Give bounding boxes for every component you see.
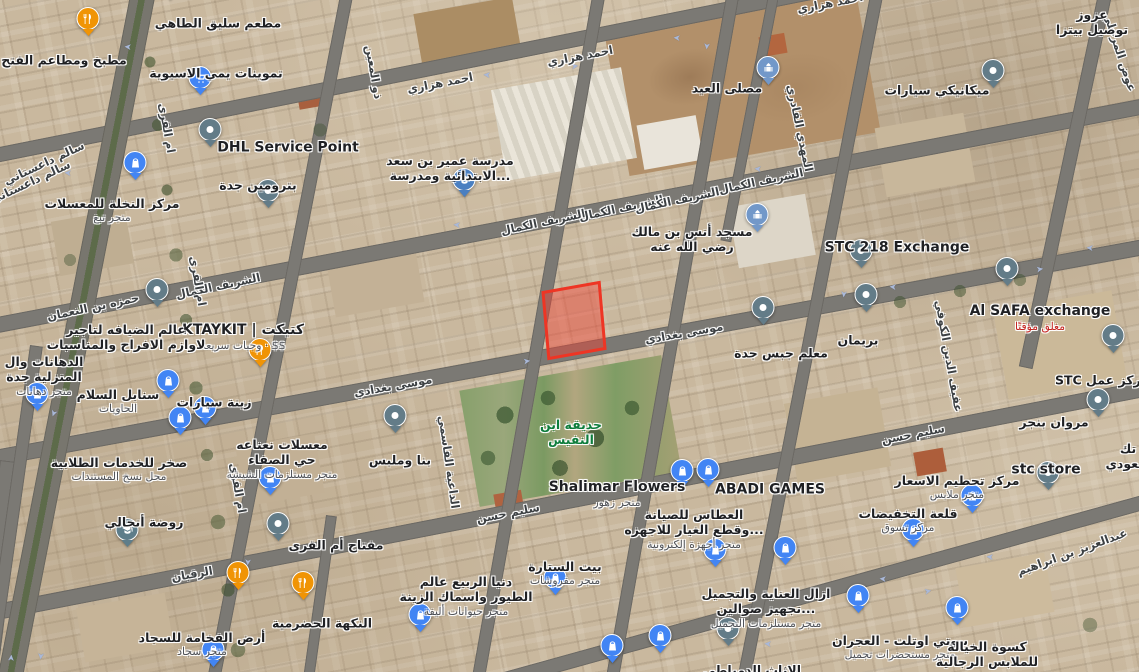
poi-label-hadiqat-ibn-alnafis[interactable]: حديقة ابنالنفيس bbox=[540, 417, 602, 448]
street-name-label: احمد هزاري bbox=[796, 0, 864, 16]
poi-label-matbakh-wa-mataem-alfath[interactable]: مطبخ ومطاعم الفتح bbox=[1, 52, 127, 67]
pin-tail bbox=[129, 173, 141, 180]
dot-icon bbox=[207, 126, 214, 133]
poi-label-markaz-tahtim-alasaar[interactable]: مركز تحطيم الاسعارمتجر ملابس bbox=[895, 473, 1020, 501]
poi-label-line: DHL Service Point bbox=[217, 139, 359, 156]
street-name-label: المهدي القادري bbox=[784, 83, 816, 173]
poi-label-matam-saliq-altahi[interactable]: مطعم سليق الطاهي bbox=[155, 15, 281, 30]
pin-tail bbox=[1107, 346, 1119, 353]
poi-label-line: روضة أنجالي bbox=[105, 514, 184, 529]
dot-pin-icon bbox=[384, 404, 407, 427]
pin-tail bbox=[762, 78, 774, 85]
pin-tail bbox=[966, 506, 978, 513]
poi-pin-bag-pin-a[interactable] bbox=[649, 624, 672, 653]
poi-label-ard-alfakhama-lilsajjad[interactable]: أرض الفخامة للسجادمتجر سجاد bbox=[139, 630, 266, 658]
mosque-pin-icon bbox=[746, 203, 769, 226]
poi-label-line: مطعم سليق الطاهي bbox=[155, 15, 281, 30]
pin-tail bbox=[702, 480, 714, 487]
poi-pin-bag-pin-e[interactable] bbox=[774, 536, 797, 565]
poi-pin-restaurant-pin-west[interactable] bbox=[227, 561, 250, 590]
poi-label-line: تك bbox=[1105, 441, 1139, 456]
poi-label-line: الطيور واسماك الزينة bbox=[399, 589, 532, 604]
poi-label-petromin-jeddah[interactable]: بترومين جدة bbox=[219, 177, 296, 192]
labels-layer: سالم داعستانيسالم داعستانياحمد هزارياحمد… bbox=[0, 0, 1139, 672]
poi-label-al-safa-exchange[interactable]: Al SAFA exchangeمغلق مؤقتًا bbox=[970, 303, 1111, 333]
one-way-arrow-icon: ➤ bbox=[453, 219, 461, 230]
dot-pin-icon bbox=[855, 283, 878, 306]
pin-tail bbox=[852, 606, 864, 613]
poi-label-line: مركز عمل STC bbox=[1055, 372, 1139, 387]
pin-tail bbox=[389, 426, 401, 433]
street-name-label: ام القرى bbox=[156, 102, 179, 154]
poi-label-line: حي الصفاء bbox=[227, 452, 338, 467]
dot-pin-icon bbox=[1087, 388, 1110, 411]
poi-label-dhl-service-point[interactable]: DHL Service Point bbox=[217, 139, 359, 156]
poi-label-line: STC 218 Exchange bbox=[825, 239, 970, 256]
poi-label-musalla-aleid[interactable]: مصلى العيد bbox=[692, 80, 763, 95]
one-way-arrow-icon: ➤ bbox=[986, 551, 994, 562]
one-way-arrow-icon: ➤ bbox=[701, 42, 712, 50]
pin-tail bbox=[751, 225, 763, 232]
fork-knife-icon bbox=[297, 577, 309, 589]
bag-pin-icon bbox=[157, 369, 180, 392]
dot-pin-icon bbox=[752, 296, 775, 319]
street-name-label: الشريف الكمال bbox=[174, 270, 261, 302]
pin-tail bbox=[860, 305, 872, 312]
pin-tail bbox=[174, 428, 186, 435]
street-name-label: موسى بغدادي bbox=[353, 372, 433, 400]
shopping-bag-icon bbox=[702, 464, 714, 476]
poi-label-line: الابتدائية ومدرسة... bbox=[386, 168, 513, 183]
poi-label-line: الدهانات وال bbox=[5, 354, 84, 369]
poi-pin-alam-aldiafa[interactable] bbox=[146, 278, 169, 307]
poi-label-line: تجهيز صوالين... bbox=[702, 601, 831, 616]
dot-pin-icon bbox=[146, 278, 169, 301]
poi-label-line: بريمان bbox=[838, 332, 879, 347]
poi-pin-markaz-alnakhla-lilmuassalat[interactable] bbox=[124, 151, 147, 180]
pin-tail bbox=[232, 583, 244, 590]
shopping-bag-icon bbox=[951, 602, 963, 614]
pin-tail bbox=[82, 29, 94, 36]
poi-label-line: للملابس الرجالية bbox=[936, 654, 1038, 669]
poi-label-line: معسلات نعناعه bbox=[227, 437, 338, 452]
pin-tail bbox=[199, 418, 211, 425]
poi-label-line: مركز تحطيم الاسعار bbox=[895, 473, 1020, 488]
poi-label-line: عالم الضيافه لتاجير bbox=[47, 322, 206, 337]
poi-label-line: stc store bbox=[1011, 461, 1080, 478]
pin-tail bbox=[254, 360, 266, 367]
poi-label-line: بترومين جدة bbox=[219, 177, 296, 192]
bag-pin-icon bbox=[774, 536, 797, 559]
poi-label-dunya-alrabie[interactable]: دنيا الربيع عالمالطيور واسماك الزينةمتجر… bbox=[399, 574, 532, 618]
pin-tail bbox=[606, 656, 618, 663]
poi-label-line: الاثاث الدمياطي bbox=[703, 662, 801, 672]
shopping-bag-icon bbox=[174, 412, 186, 424]
pin-tail bbox=[264, 488, 276, 495]
poi-label-line: مدرسة عمير بن سعد bbox=[386, 153, 513, 168]
street-name-label: عبدالعزيز بن ابراهيم bbox=[1015, 526, 1129, 579]
bag-pin-icon bbox=[946, 596, 969, 619]
poi-label-line: الحاويات bbox=[77, 402, 160, 415]
poi-label-line: توصيل بيتزا bbox=[1056, 22, 1128, 37]
pin-tail bbox=[204, 140, 216, 147]
dot-icon bbox=[990, 67, 997, 74]
pin-tail bbox=[779, 558, 791, 565]
poi-label-line: رضي الله عنه bbox=[631, 239, 752, 254]
bag-pin-icon bbox=[697, 458, 720, 481]
one-way-arrow-icon: ➤ bbox=[124, 41, 132, 52]
poi-label-line: ABADI GAMES bbox=[715, 481, 825, 498]
poi-label-line: Shalimar Flowers bbox=[549, 479, 686, 496]
poi-label-line: أرض الفخامة للسجاد bbox=[139, 630, 266, 645]
bag-pin-icon bbox=[124, 151, 147, 174]
poi-label-shalimar-flowers[interactable]: Shalimar Flowersمتجر زهور bbox=[549, 479, 686, 509]
poi-label-line: لاوازم الافراح والمناسبات bbox=[47, 337, 206, 352]
dot-icon bbox=[863, 291, 870, 298]
poi-label-line: متجر حيوانات أليفة bbox=[399, 605, 532, 618]
poi-label-line: المنزلية جدة bbox=[5, 369, 84, 384]
poi-pin-marwan-binjar[interactable] bbox=[1087, 388, 1110, 417]
pin-tail bbox=[121, 540, 133, 547]
poi-label-marwan-binjar[interactable]: مروان بنجر bbox=[1019, 414, 1088, 429]
poi-label-line: حديقة ابن bbox=[540, 417, 602, 432]
shopping-bag-icon bbox=[129, 157, 141, 169]
street-name-label: الرقبان bbox=[170, 563, 214, 584]
poi-pin-bana-wa-malbas[interactable] bbox=[384, 404, 407, 433]
poi-label-line: عزوز bbox=[1056, 7, 1128, 22]
poi-label-line: متجر ملابس bbox=[895, 488, 1020, 501]
poi-label-line: معلم جبس جدة bbox=[734, 345, 828, 360]
poi-label-line: صخر للخدمات الطلابية bbox=[51, 455, 188, 470]
pin-tail bbox=[1092, 410, 1104, 417]
shopping-bag-icon bbox=[852, 590, 864, 602]
one-way-arrow-icon: ➤ bbox=[483, 69, 491, 80]
poi-label-tamwinat-yami-alasiyawia[interactable]: تموينات يمي الاسيوية bbox=[149, 65, 282, 80]
poi-label-line: مسجد أنس بن مالك bbox=[631, 224, 752, 239]
poi-label-sakhr-lilkhadamat-altullabia[interactable]: صخر للخدمات الطلابيةمحل نسخ المستندات bbox=[51, 455, 188, 483]
street-name-label: حمزه بن النعمان bbox=[46, 290, 141, 323]
poi-label-kiswat-alkhayala[interactable]: كسوة الخيالةللملابس الرجالية bbox=[936, 639, 1038, 670]
pin-tail bbox=[194, 88, 206, 95]
map-stage[interactable]: سالم داعستانيسالم داعستانياحمد هزارياحمد… bbox=[0, 0, 1139, 672]
poi-label-line: سنابل السلام bbox=[77, 387, 160, 402]
pin-tail bbox=[1001, 279, 1013, 286]
poi-label-line: مغلق مؤقتًا bbox=[970, 320, 1111, 333]
poi-label-izal-alinaya-waltajmil[interactable]: ازال العناية والتجميلتجهيز صوالين...متجر… bbox=[702, 586, 831, 630]
fork-knife-icon bbox=[232, 567, 244, 579]
one-way-arrow-icon: ➤ bbox=[47, 408, 59, 419]
street-name-label: سليم حسن bbox=[880, 421, 946, 447]
poi-label-muassalat-nanaa[interactable]: معسلات نعناعهحي الصفاءمتجر مستلزمات الشي… bbox=[227, 437, 338, 481]
poi-label-qalat-altakhfidat[interactable]: قلعة التخفيضاتمركز تسوق bbox=[858, 506, 957, 534]
pin-tail bbox=[151, 300, 163, 307]
poi-label-abadi-games[interactable]: ABADI GAMES bbox=[715, 481, 825, 498]
poi-label-line: مركز النخلة للمعسلات bbox=[44, 196, 179, 211]
poi-label-alnakha-alhadramia[interactable]: النكهة الحضرمية bbox=[272, 615, 372, 630]
bag-pin-icon bbox=[601, 634, 624, 657]
street-name-label: موسى بغدادي bbox=[644, 319, 724, 347]
pin-tail bbox=[297, 593, 309, 600]
poi-label-sanabil-alsalam[interactable]: سنابل السلامالحاويات bbox=[77, 387, 160, 415]
poi-label-rawdat-anjali[interactable]: روضة أنجالي bbox=[105, 514, 184, 529]
one-way-arrow-icon: ➤ bbox=[889, 281, 897, 292]
poi-label-muallim-jibs-jeddah[interactable]: معلم جبس جدة bbox=[734, 345, 828, 360]
poi-label-line: متجر سجاد bbox=[139, 645, 266, 658]
one-way-arrow-icon: ➤ bbox=[35, 652, 46, 660]
poi-label-line: مروان بنجر bbox=[1019, 414, 1088, 429]
street-name-label: عفيف الدين الكوفي bbox=[932, 299, 965, 413]
dot-icon bbox=[1110, 332, 1117, 339]
poi-label-line: متجر تبغ bbox=[44, 211, 179, 224]
poi-label-line: متجر مفروشات bbox=[528, 574, 601, 587]
dot-pin-icon bbox=[267, 512, 290, 535]
pin-tail bbox=[262, 201, 274, 208]
pin-tail bbox=[709, 560, 721, 567]
poi-label-mikaniki-sayarat[interactable]: ميكانيكي سيارات bbox=[885, 82, 990, 97]
pin-tail bbox=[907, 540, 919, 547]
poi-label-zinat-sayarat[interactable]: زينة سيارات bbox=[176, 394, 251, 409]
poi-label-alam-aldiafa[interactable]: عالم الضيافه لتاجيرلاوازم الافراح والمنا… bbox=[47, 322, 206, 353]
poi-label-line: مصلى العيد bbox=[692, 80, 763, 95]
poi-label-line: زينة سيارات bbox=[176, 394, 251, 409]
pin-tail bbox=[207, 660, 219, 667]
poi-label-masjid-anas-bin-malik[interactable]: مسجد أنس بن مالكرضي الله عنه bbox=[631, 224, 752, 255]
poi-label-line: ميكانيكي سيارات bbox=[885, 82, 990, 97]
poi-pin-breman[interactable] bbox=[855, 283, 878, 312]
poi-pin-bag-pin-b[interactable] bbox=[601, 634, 624, 663]
poi-label-line: النفيس bbox=[540, 432, 602, 447]
pin-tail bbox=[162, 391, 174, 398]
poi-label-line: مفتاح أم القرى bbox=[289, 537, 384, 552]
poi-label-alattas-lilsiyana[interactable]: العطاس للصيانةوقطع الغيار للاجهزه...متجر… bbox=[624, 507, 763, 551]
dot-icon bbox=[392, 412, 399, 419]
poi-pin-muallim-jibs-jeddah[interactable] bbox=[752, 296, 775, 325]
one-way-arrow-icon: ➤ bbox=[879, 573, 887, 584]
poi-label-line: بيت الستارة bbox=[528, 559, 601, 574]
one-way-arrow-icon: ➤ bbox=[764, 638, 772, 649]
shopping-bag-icon bbox=[779, 542, 791, 554]
poi-label-markaz-amal-stc[interactable]: مركز عمل STC bbox=[1055, 372, 1139, 387]
poi-label-line: سعودي bbox=[1105, 456, 1139, 471]
one-way-arrow-icon: ➤ bbox=[1036, 265, 1045, 276]
poi-label-line: متجر مستلزمات الشيشة bbox=[227, 468, 338, 481]
one-way-arrow-icon: ➤ bbox=[754, 163, 762, 174]
poi-label-madrasat-umayr-bin-saad[interactable]: مدرسة عمير بن سعدالابتدائية ومدرسة... bbox=[386, 153, 513, 184]
poi-label-stc-218-exchange[interactable]: STC 218 Exchange bbox=[825, 239, 970, 256]
poi-pin-beauty-outlet-alajran[interactable] bbox=[847, 584, 870, 613]
poi-label-breman[interactable]: بريمان bbox=[838, 332, 879, 347]
mosque-icon bbox=[762, 62, 774, 74]
pin-tail bbox=[654, 646, 666, 653]
one-way-arrow-icon: ➤ bbox=[523, 357, 532, 368]
pin-tail bbox=[272, 534, 284, 541]
pin-tail bbox=[951, 618, 963, 625]
poi-label-line: مطبخ ومطاعم الفتح bbox=[1, 52, 127, 67]
poi-label-bana-wa-malbas[interactable]: بنا وملبس bbox=[369, 452, 431, 467]
poi-label-line: دنيا الربيع عالم bbox=[399, 574, 532, 589]
poi-pin-kiswat-alkhayala[interactable] bbox=[946, 596, 969, 625]
street-name-label: الشريف الكمال bbox=[633, 184, 720, 216]
poi-label-line: وقطع الغيار للاجهزه... bbox=[624, 522, 763, 537]
dot-icon bbox=[154, 286, 161, 293]
poi-label-line: تموينات يمي الاسيوية bbox=[149, 65, 282, 80]
one-way-arrow-icon: ➤ bbox=[838, 290, 849, 298]
poi-label-line: متجر دهانات bbox=[5, 385, 84, 398]
shopping-bag-icon bbox=[606, 640, 618, 652]
shopping-bag-icon bbox=[654, 630, 666, 642]
dot-pin-icon bbox=[996, 257, 1019, 280]
one-way-arrow-icon: ➤ bbox=[1086, 242, 1094, 253]
one-way-arrow-icon: ➤ bbox=[923, 586, 932, 597]
poi-label-azouz-tawsil-pizza[interactable]: عزوزتوصيل بيتزا bbox=[1056, 7, 1128, 38]
mosque-icon bbox=[751, 209, 763, 221]
pin-tail bbox=[414, 625, 426, 632]
poi-label-line: بنا وملبس bbox=[369, 452, 431, 467]
poi-label-dahanat-almanzilia[interactable]: الدهانات والالمنزلية جدةمتجر دهانات bbox=[5, 354, 84, 398]
pin-tail bbox=[458, 190, 470, 197]
poi-pin-matbakh-wa-mataem-alfath[interactable] bbox=[77, 7, 100, 36]
poi-label-line: محل نسخ المستندات bbox=[51, 470, 188, 483]
pin-tail bbox=[549, 588, 561, 595]
dot-icon bbox=[1004, 265, 1011, 272]
street-name-label: الداعية القاسمي bbox=[436, 415, 463, 510]
poi-label-label-fragment-right[interactable]: تكسعودي bbox=[1105, 441, 1139, 472]
poi-pin-sakhr-lilkhadamat-altullabia[interactable] bbox=[169, 406, 192, 435]
poi-label-stc-store[interactable]: stc store bbox=[1011, 461, 1080, 478]
poi-label-line: قلعة التخفيضات bbox=[858, 506, 957, 521]
poi-label-line: كسوة الخيالة bbox=[936, 639, 1038, 654]
dot-pin-icon bbox=[982, 59, 1005, 82]
street-name-label: سليم حسن bbox=[475, 500, 541, 526]
street-name-label: احمد هزاري bbox=[406, 70, 474, 96]
poi-label-alathath-aldumyati[interactable]: الاثاث الدمياطي bbox=[703, 662, 801, 672]
one-way-arrow-icon: ➤ bbox=[7, 654, 18, 662]
shopping-bag-icon bbox=[676, 465, 688, 477]
poi-pin-al-safa-exchange[interactable] bbox=[996, 257, 1019, 286]
poi-label-line: العطاس للصيانة bbox=[624, 507, 763, 522]
one-way-arrow-icon: ➤ bbox=[673, 32, 681, 43]
pin-tail bbox=[855, 261, 867, 268]
dot-pin-icon bbox=[199, 118, 222, 141]
poi-label-line: Al SAFA exchange bbox=[970, 303, 1111, 320]
bag-pin-icon bbox=[649, 624, 672, 647]
poi-pin-alnakha-alhadramia[interactable] bbox=[292, 571, 315, 600]
street-name-label: الشريف الكمال bbox=[499, 206, 586, 238]
poi-label-miftah-umm-alqura[interactable]: مفتاح أم القرى bbox=[289, 537, 384, 552]
poi-label-line: متجر مستلزمات التجميل bbox=[702, 617, 831, 630]
pin-tail bbox=[1042, 483, 1054, 490]
dot-icon bbox=[1095, 396, 1102, 403]
poi-pin-miftah-umm-alqura[interactable] bbox=[267, 512, 290, 541]
pin-tail bbox=[31, 404, 43, 411]
mosque-pin-icon bbox=[757, 56, 780, 79]
restaurant-pin-icon bbox=[292, 571, 315, 594]
poi-label-bayt-alsitara[interactable]: بيت الستارةمتجر مفروشات bbox=[528, 559, 601, 587]
fork-knife-icon bbox=[82, 13, 94, 25]
pin-tail bbox=[757, 318, 769, 325]
poi-label-line: مركز تسوق bbox=[858, 521, 957, 534]
poi-label-line: متجر أجهزة إلكترونية bbox=[624, 538, 763, 551]
dot-icon bbox=[275, 520, 282, 527]
poi-label-line: ازال العناية والتجميل bbox=[702, 586, 831, 601]
bag-pin-icon bbox=[847, 584, 870, 607]
street-name-label: احمد هزاري bbox=[546, 43, 614, 69]
poi-label-markaz-alnakhla-lilmuassalat[interactable]: مركز النخلة للمعسلاتمتجر تبغ bbox=[44, 196, 179, 224]
restaurant-pin-icon bbox=[227, 561, 250, 584]
poi-label-line: النكهة الحضرمية bbox=[272, 615, 372, 630]
street-name-label: ذو المعين bbox=[362, 44, 385, 100]
dot-icon bbox=[760, 304, 767, 311]
shopping-bag-icon bbox=[162, 375, 174, 387]
pin-tail bbox=[722, 639, 734, 646]
restaurant-pin-icon bbox=[77, 7, 100, 30]
